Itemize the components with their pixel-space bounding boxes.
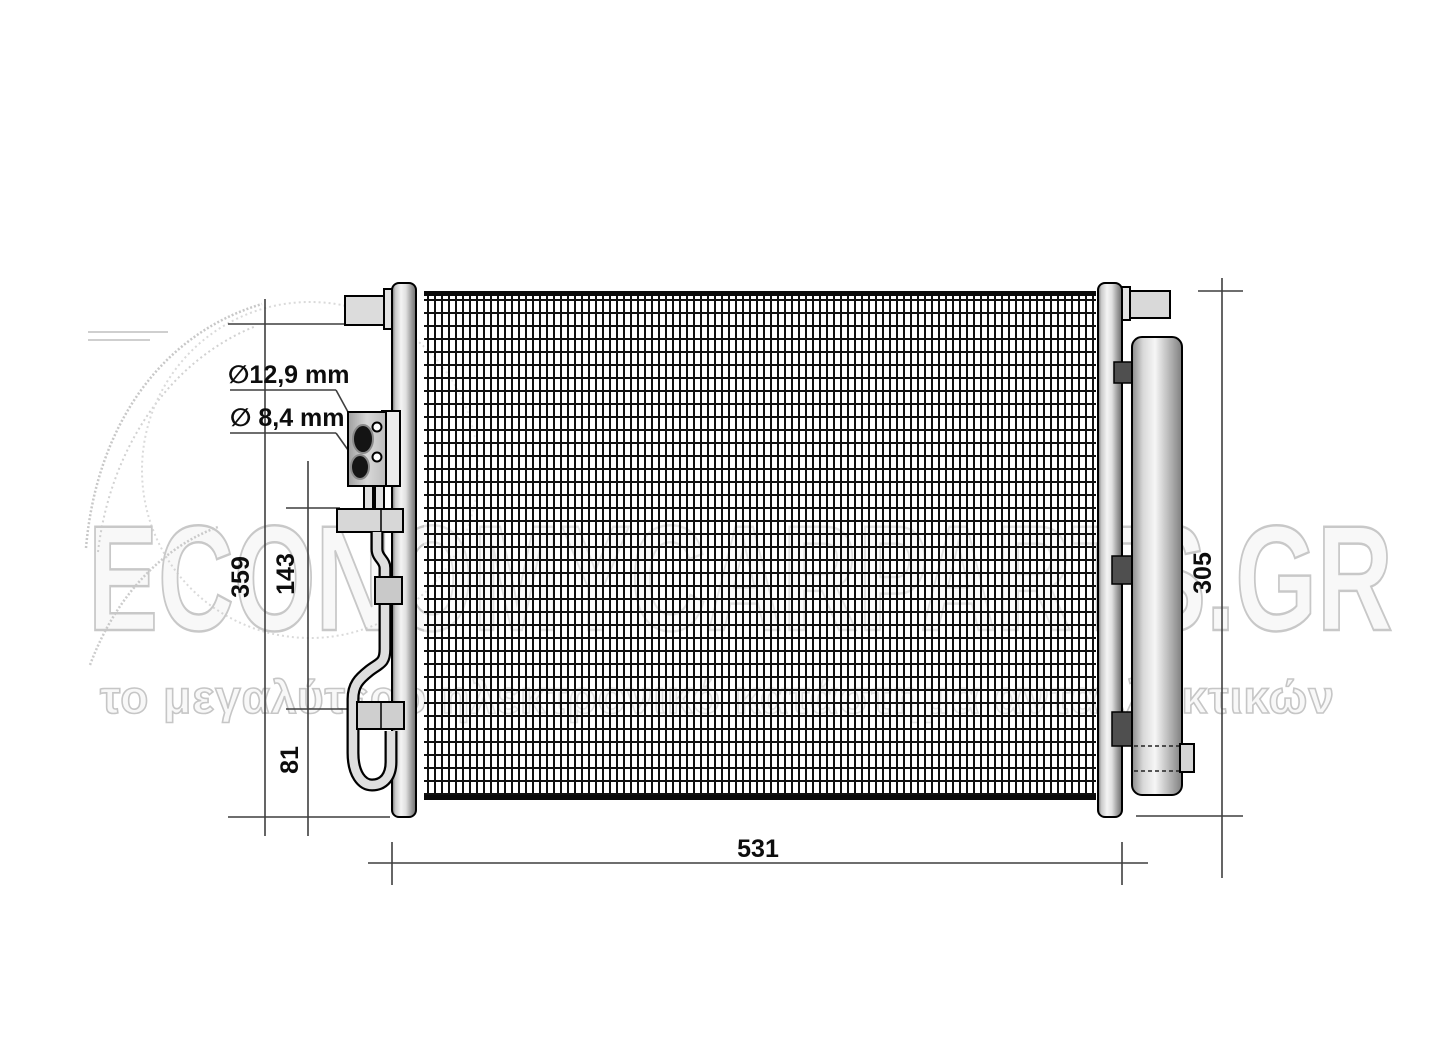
port-diameter-large-label: ∅12,9 mm	[228, 362, 349, 388]
condenser-diagram	[0, 0, 1440, 1058]
bracket-distance-dimension: 143	[273, 539, 299, 609]
condenser-core	[424, 291, 1096, 800]
port-diameter-small-label: ∅ 8,4 mm	[230, 405, 345, 431]
inlet-outlet-fitting	[348, 411, 400, 486]
receiver-drier	[1132, 337, 1194, 795]
core-width-dimension: 531	[723, 836, 793, 862]
lower-offset-dimension: 81	[277, 735, 303, 785]
drier-length-dimension: 305	[1190, 538, 1216, 608]
technical-drawing-canvas: ECONOMYCARPARTS.GR το μεγαλύτερο ηλεκτρο…	[0, 0, 1440, 1058]
drier-outlet-stub	[1180, 744, 1194, 772]
overall-height-dimension: 359	[228, 542, 254, 612]
